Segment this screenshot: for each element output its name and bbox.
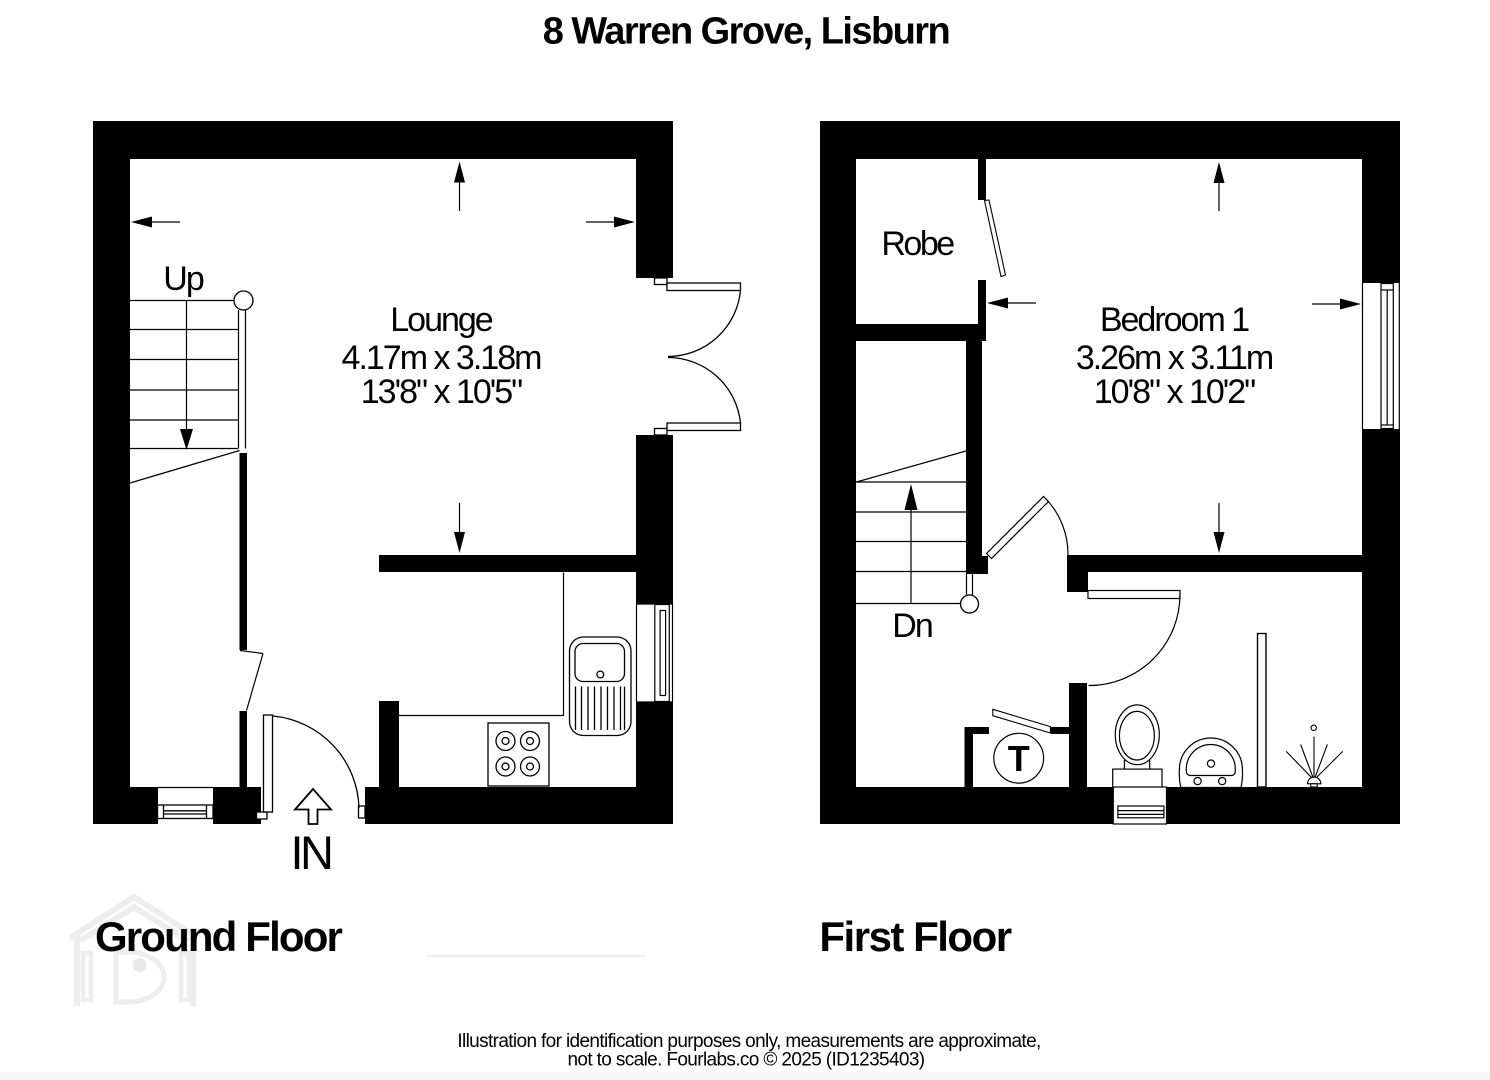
svg-text:Robe: Robe xyxy=(881,225,954,263)
svg-text:3.26m x 3.11m: 3.26m x 3.11m xyxy=(1076,339,1273,377)
svg-text:4.17m x 3.18m: 4.17m x 3.18m xyxy=(342,339,542,377)
svg-text:not to scale. Fourlabs.co © 20: not to scale. Fourlabs.co © 2025 (ID1235… xyxy=(567,1050,924,1071)
svg-text:Dn: Dn xyxy=(892,607,932,645)
svg-text:First Floor: First Floor xyxy=(819,913,1011,960)
svg-text:IN: IN xyxy=(291,826,332,879)
svg-text:10'8" x 10'2": 10'8" x 10'2" xyxy=(1094,373,1255,411)
svg-text:T: T xyxy=(1008,738,1030,779)
svg-text:13'8" x 10'5": 13'8" x 10'5" xyxy=(361,373,522,411)
svg-text:Up: Up xyxy=(163,260,204,298)
svg-text:Ground Floor: Ground Floor xyxy=(95,913,343,960)
svg-text:8 Warren Grove, Lisburn: 8 Warren Grove, Lisburn xyxy=(543,11,949,53)
svg-text:Bedroom 1: Bedroom 1 xyxy=(1100,301,1249,339)
svg-text:Lounge: Lounge xyxy=(390,301,493,339)
